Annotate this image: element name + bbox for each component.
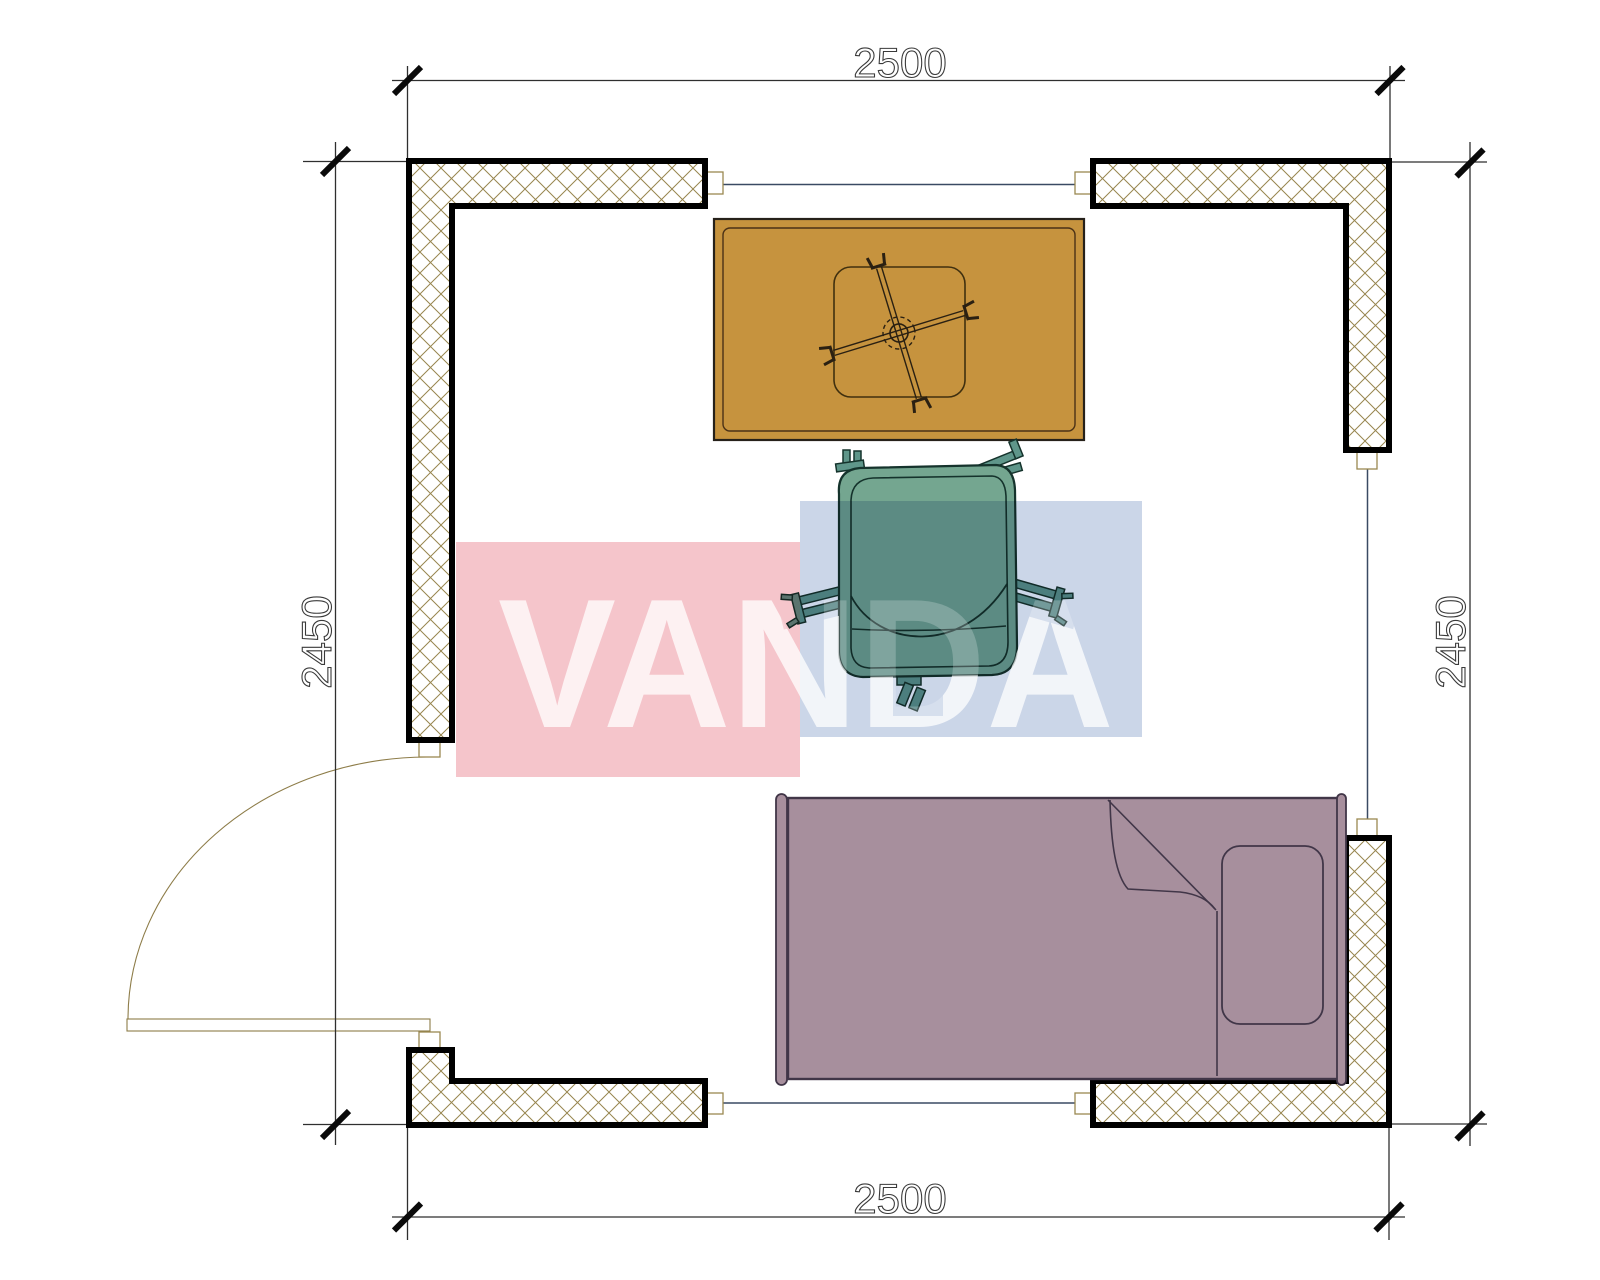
svg-text:2450: 2450 bbox=[1427, 595, 1474, 688]
svg-text:2500: 2500 bbox=[853, 1175, 946, 1222]
svg-text:2500: 2500 bbox=[853, 39, 946, 86]
svg-text:2450: 2450 bbox=[293, 595, 340, 688]
